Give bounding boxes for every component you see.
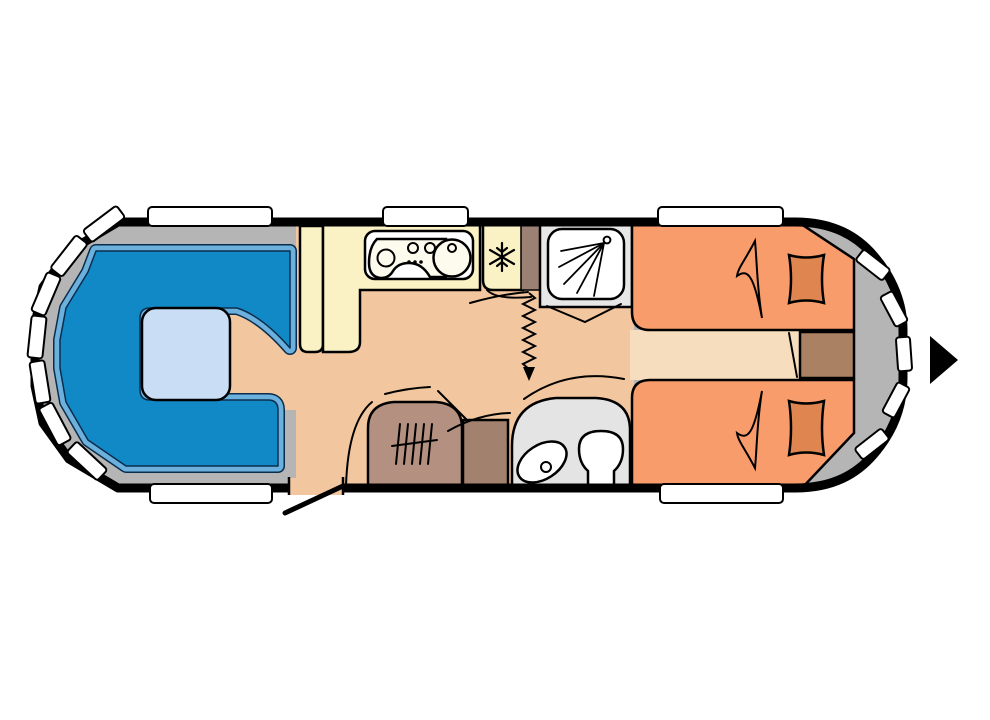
- bedside-cabinet: [800, 332, 854, 378]
- kitchen-sink: [434, 240, 471, 277]
- caravan-floorplan: [0, 0, 990, 720]
- window-bottom-lounge: [150, 484, 272, 503]
- kitchen-bench: [300, 226, 323, 352]
- hob-knob-2: [413, 260, 417, 264]
- bedroom-aisle-floor: [630, 330, 802, 380]
- bed-bottom-pillow: [789, 401, 824, 455]
- window-rear-3: [896, 337, 912, 372]
- hob-knob-1: [407, 260, 411, 264]
- window-front-4: [27, 315, 46, 358]
- window-bottom-bed: [660, 484, 783, 503]
- single-bed-top: [632, 222, 854, 330]
- cabinet: [463, 420, 508, 487]
- entrance-door: [285, 477, 343, 513]
- dinette-table: [142, 308, 230, 400]
- window-top-lounge: [148, 207, 272, 226]
- floorplan-canvas: [0, 0, 990, 720]
- shower-tray: [548, 229, 624, 299]
- direction-arrow-icon: [930, 336, 958, 384]
- wardrobe-body: [368, 402, 462, 487]
- shower-cubicle: [540, 222, 632, 322]
- hob-knob-3: [419, 260, 423, 264]
- window-top-bed: [658, 207, 783, 226]
- window-top-kitchen: [383, 207, 468, 226]
- bed-top-pillow: [789, 255, 824, 303]
- partition-wall: [521, 222, 540, 290]
